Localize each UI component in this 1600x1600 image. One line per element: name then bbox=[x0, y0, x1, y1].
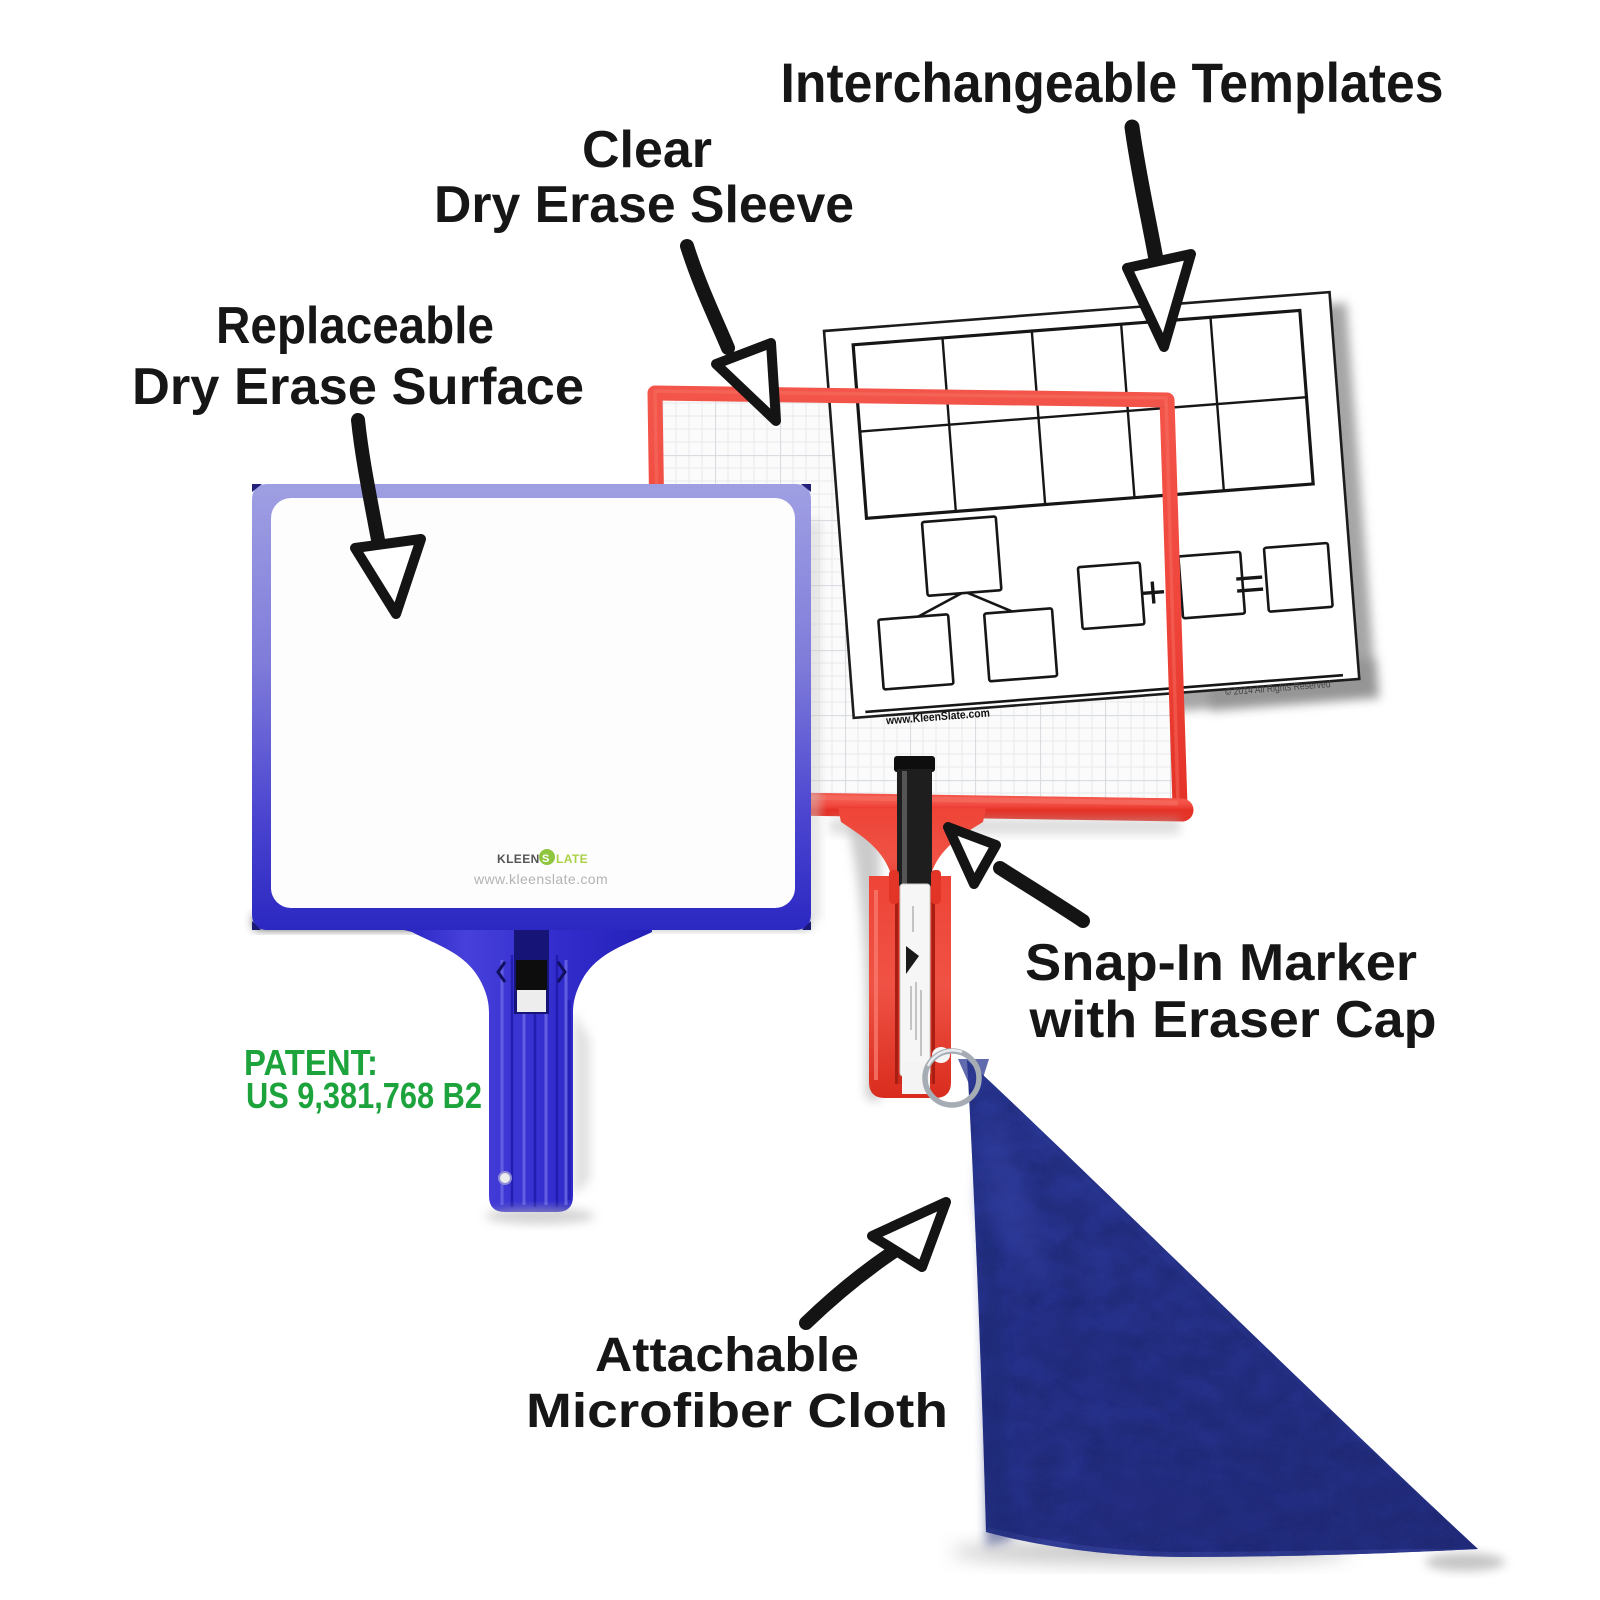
svg-text:US 9,381,768 B2: US 9,381,768 B2 bbox=[246, 1075, 482, 1116]
svg-text:www.kleenslate.com: www.kleenslate.com bbox=[473, 871, 608, 887]
svg-text:Replaceable: Replaceable bbox=[216, 297, 494, 355]
svg-text:Attachable: Attachable bbox=[595, 1329, 859, 1382]
svg-text:Dry Erase Surface: Dry Erase Surface bbox=[132, 358, 584, 416]
svg-text:S: S bbox=[542, 853, 549, 865]
svg-text:with Eraser Cap: with Eraser Cap bbox=[1028, 991, 1436, 1049]
svg-text:KLEEN: KLEEN bbox=[497, 852, 540, 866]
svg-text:Microfiber Cloth: Microfiber Cloth bbox=[526, 1385, 948, 1438]
svg-text:Snap-In Marker: Snap-In Marker bbox=[1025, 934, 1417, 992]
svg-text:Clear: Clear bbox=[582, 121, 712, 179]
svg-text:LATE: LATE bbox=[556, 852, 588, 866]
svg-text:Interchangeable Templates: Interchangeable Templates bbox=[781, 51, 1444, 114]
svg-text:Dry Erase Sleeve: Dry Erase Sleeve bbox=[434, 176, 854, 234]
